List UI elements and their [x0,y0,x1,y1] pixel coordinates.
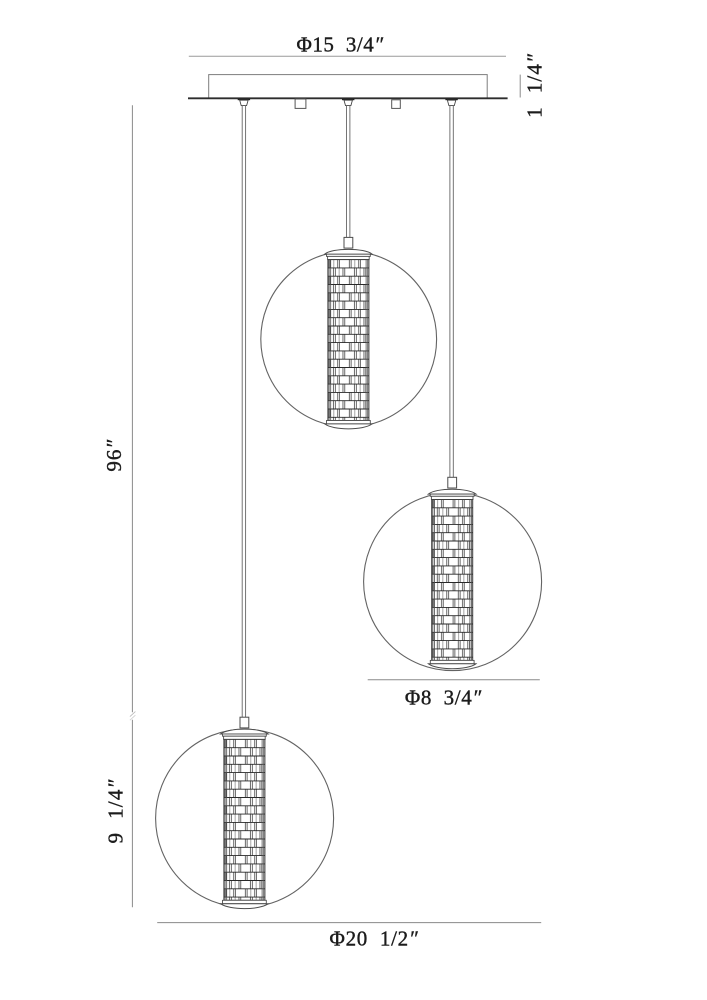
svg-text:Φ8 3/4″: Φ8 3/4″ [405,686,482,710]
svg-text:9 1/4″: 9 1/4″ [103,779,127,844]
svg-text:Φ20 1/2″: Φ20 1/2″ [330,926,419,950]
svg-text:Φ15 3/4″: Φ15 3/4″ [297,33,384,57]
svg-text:96″: 96″ [102,439,126,472]
svg-text:1 1/4″: 1 1/4″ [523,53,547,118]
